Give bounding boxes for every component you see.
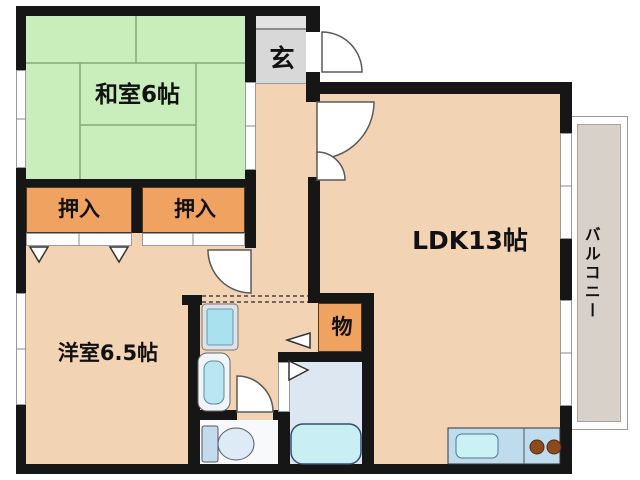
washing-machine-icon xyxy=(202,304,238,350)
room-label-washitsu: 和室6帖 xyxy=(60,83,215,107)
stove-burner-icon xyxy=(530,440,544,454)
kitchen-counter-icon xyxy=(448,428,561,464)
toilet-icon xyxy=(202,426,254,462)
ldk-door-arc-small xyxy=(317,152,345,180)
bathtub-icon xyxy=(291,424,361,464)
bath-slide-marker xyxy=(289,361,308,380)
youshitsu-door-arc xyxy=(208,250,251,293)
entrance-door-arc xyxy=(322,32,362,72)
room-label-youshitsu: 洋室6.5帖 xyxy=(43,342,173,364)
room-label-genkan: 玄 xyxy=(262,46,302,72)
stove-burner-icon xyxy=(547,440,561,454)
floorplan-canvas: 和室6帖 玄 LDK13帖 押入 押入 洋室6.5帖 物 バルコニー xyxy=(0,0,640,480)
room-label-storage: 物 xyxy=(327,316,357,338)
door-arcs xyxy=(208,32,374,412)
toilet-door-arc xyxy=(237,376,273,412)
kitchen-sink-icon xyxy=(456,434,498,458)
closet-fold-marker xyxy=(110,247,128,262)
storage-slide-marker xyxy=(287,333,310,348)
room-label-closet-right: 押入 xyxy=(160,198,230,220)
closet-fold-marker xyxy=(30,247,48,262)
ldk-door-arc-large xyxy=(317,102,374,159)
room-label-ldk: LDK13帖 xyxy=(395,228,545,254)
room-label-closet-left: 押入 xyxy=(44,198,114,220)
washbasin-icon xyxy=(198,353,230,411)
dashed-opening xyxy=(202,296,308,302)
room-label-balcony: バルコニー xyxy=(582,198,599,348)
